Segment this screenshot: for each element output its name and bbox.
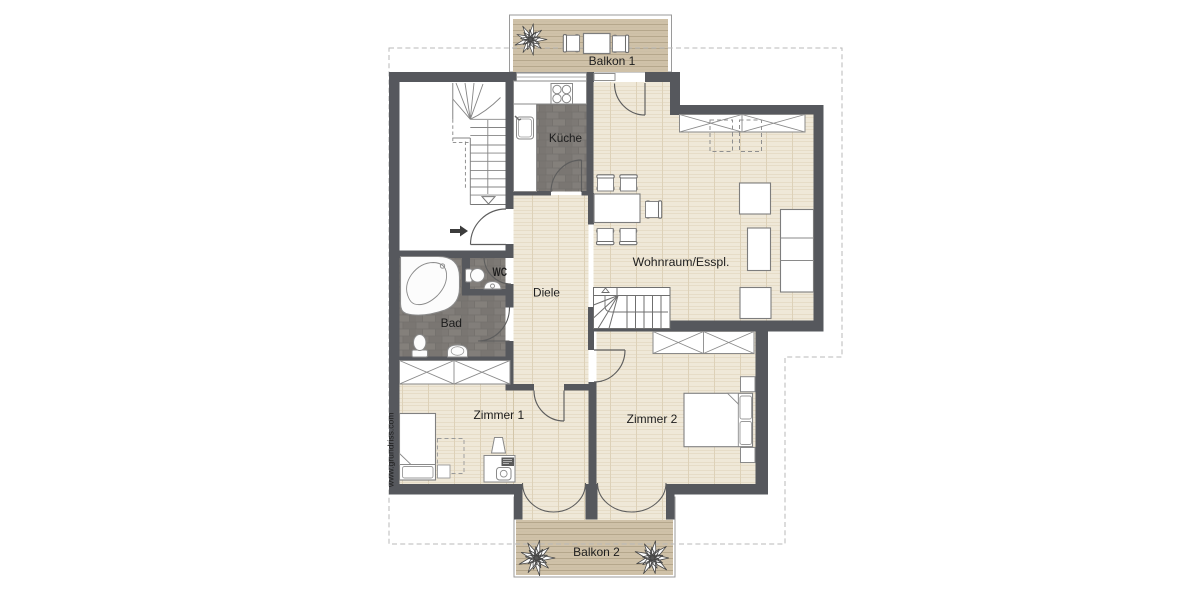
svg-text:Wohnraum/Esspl.: Wohnraum/Esspl. [633,255,730,269]
svg-text:Bad: Bad [441,316,462,330]
svg-text:Küche: Küche [549,132,582,145]
svg-text:Zimmer 2: Zimmer 2 [627,412,678,426]
svg-text:WC: WC [493,267,508,279]
svg-text:Balkon 1: Balkon 1 [589,54,636,68]
svg-text:www.grundriss.com: www.grundriss.com [386,413,396,489]
svg-text:Diele: Diele [533,285,560,299]
svg-text:Balkon 2: Balkon 2 [573,545,620,559]
svg-text:Zimmer 1: Zimmer 1 [473,408,524,422]
